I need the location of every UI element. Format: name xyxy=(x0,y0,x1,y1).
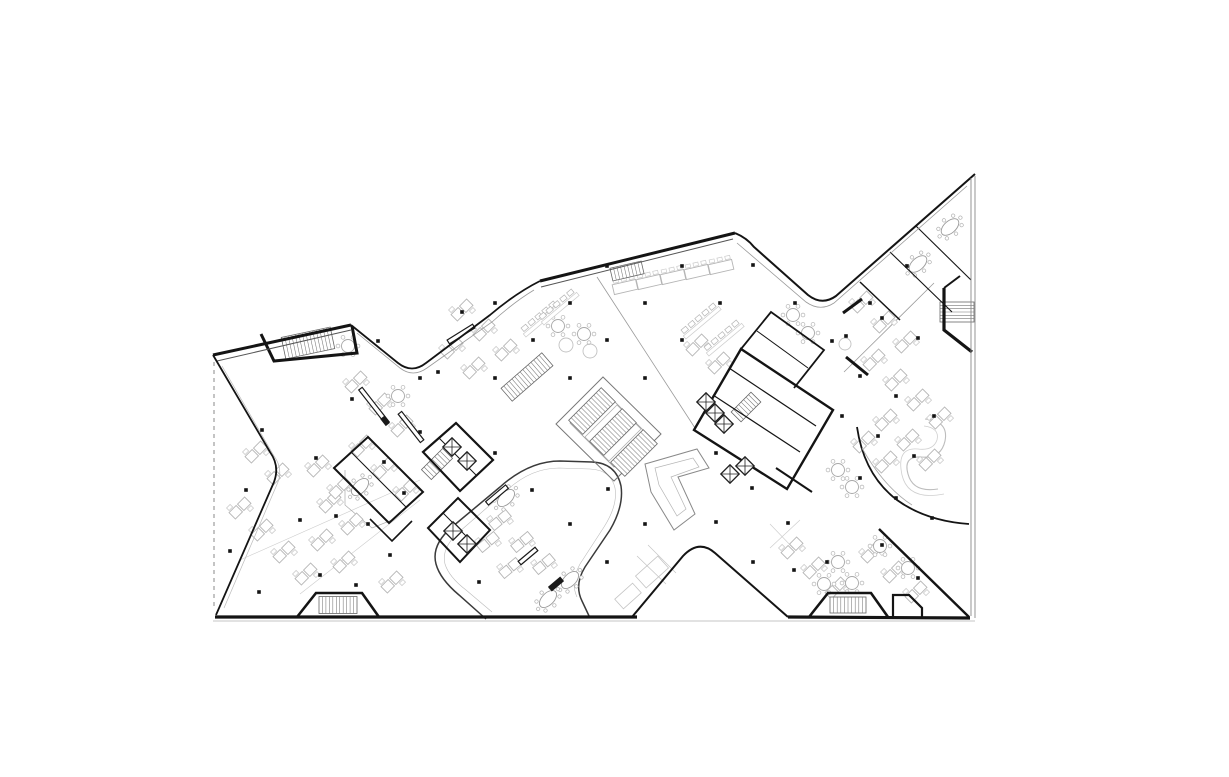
long-table xyxy=(707,255,734,275)
room-partition xyxy=(757,331,808,368)
table-top xyxy=(787,309,800,322)
facade-south-right xyxy=(788,617,970,618)
oval-meeting-table xyxy=(529,580,566,617)
desk-group xyxy=(904,386,933,415)
chair-icon xyxy=(572,332,576,336)
column-dot xyxy=(718,301,722,305)
notch-top-left-glass-line xyxy=(357,290,534,373)
column-dot xyxy=(257,590,261,594)
chair-icon xyxy=(927,260,932,265)
elevator-cell xyxy=(444,522,462,540)
column-dot xyxy=(418,430,422,434)
column-dot xyxy=(568,376,572,380)
stair-flight xyxy=(281,327,334,359)
chair-icon xyxy=(367,475,372,480)
chair-icon xyxy=(841,459,845,463)
chair-icon xyxy=(701,260,707,264)
chair-icon xyxy=(401,403,405,407)
chair-icon xyxy=(945,236,950,241)
chair-icon xyxy=(896,566,900,570)
table-top xyxy=(818,578,831,591)
chair-icon xyxy=(841,569,845,573)
chair-icon xyxy=(911,575,915,579)
column-dot xyxy=(750,486,754,490)
chair-icon xyxy=(515,493,520,498)
desk-group xyxy=(226,494,255,523)
chair-icon xyxy=(539,590,544,595)
chair-icon xyxy=(364,491,369,496)
column-dot xyxy=(894,496,898,500)
desk-group xyxy=(916,446,945,475)
chair-icon xyxy=(536,606,541,611)
chair-icon xyxy=(841,477,845,481)
chair-icon xyxy=(561,571,566,576)
table-top xyxy=(832,556,845,569)
column-dot xyxy=(751,263,755,267)
chair-icon xyxy=(951,213,956,218)
chair-icon xyxy=(351,478,356,483)
chair-icon xyxy=(685,264,691,268)
chair-icon xyxy=(826,468,830,472)
stair-flight xyxy=(731,392,761,422)
column-dot xyxy=(334,514,338,518)
column-dot xyxy=(260,428,264,432)
table-top xyxy=(536,587,559,610)
column-dot xyxy=(531,338,535,342)
chair-icon xyxy=(817,573,821,577)
desk-group xyxy=(892,328,921,357)
chair-icon xyxy=(669,267,675,271)
chair-icon xyxy=(846,468,850,472)
column-dot xyxy=(388,553,392,557)
desk-group xyxy=(926,404,955,433)
table-top xyxy=(342,340,355,353)
planter-rect xyxy=(615,583,642,609)
chair-icon xyxy=(910,255,915,260)
column-dot xyxy=(792,568,796,572)
column-dot xyxy=(714,451,718,455)
desk-group xyxy=(270,538,299,567)
chair-icon xyxy=(693,262,699,266)
chair-icon xyxy=(831,569,835,573)
column-dot xyxy=(568,301,572,305)
column-dot xyxy=(568,522,572,526)
chair-icon xyxy=(840,485,844,489)
chair-icon xyxy=(919,250,924,255)
column-dot xyxy=(354,583,358,587)
column-dot xyxy=(493,301,497,305)
chair-icon xyxy=(958,215,963,220)
chair-icon xyxy=(841,551,845,555)
column-dot xyxy=(376,339,380,343)
chair-icon xyxy=(406,394,410,398)
desk-group xyxy=(882,366,911,395)
column-dot xyxy=(930,516,934,520)
chair-icon xyxy=(937,234,942,239)
desk-group xyxy=(348,432,377,461)
planter-circle xyxy=(583,344,597,358)
chair-icon xyxy=(873,553,877,557)
table-top xyxy=(392,390,405,403)
stair-flight xyxy=(319,597,357,614)
column-dot xyxy=(350,397,354,401)
column-dot xyxy=(916,336,920,340)
column-dot xyxy=(840,414,844,418)
chair-icon xyxy=(901,575,905,579)
column-dot xyxy=(868,301,872,305)
chair-icon xyxy=(513,486,518,491)
chair-icon xyxy=(801,313,805,317)
chair-icon xyxy=(888,544,892,548)
zone-divider-line xyxy=(844,283,934,372)
desk-group xyxy=(292,560,321,589)
chair-icon xyxy=(725,255,731,259)
desk-group xyxy=(308,526,337,555)
chair-icon xyxy=(709,259,715,263)
desk-group xyxy=(370,454,399,483)
column-dot xyxy=(606,487,610,491)
chair-icon xyxy=(577,323,581,327)
chair-icon xyxy=(546,324,550,328)
column-dot xyxy=(530,488,534,492)
chair-icon xyxy=(360,473,365,478)
chair-icon xyxy=(832,582,836,586)
chair-icon xyxy=(570,566,575,571)
chair-icon xyxy=(391,385,395,389)
chair-icon xyxy=(868,544,872,548)
column-dot xyxy=(643,522,647,526)
column-dot xyxy=(880,316,884,320)
chair-icon xyxy=(801,340,805,344)
chair-icon xyxy=(959,223,964,228)
chair-icon xyxy=(954,231,959,236)
chair-icon xyxy=(873,535,877,539)
chair-icon xyxy=(551,333,555,337)
column-dot xyxy=(793,301,797,305)
column-dot xyxy=(876,434,880,438)
desk-group xyxy=(495,554,524,583)
stair-flight xyxy=(501,353,553,401)
chair-icon xyxy=(845,476,849,480)
round-table xyxy=(572,323,596,344)
chair-icon xyxy=(827,573,831,577)
column-dot xyxy=(830,339,834,343)
elevator-x-icon xyxy=(721,465,739,483)
column-dot xyxy=(314,456,318,460)
table-top xyxy=(906,253,930,276)
elevator-x-icon xyxy=(444,522,462,540)
chair-icon xyxy=(369,482,374,487)
chair-icon xyxy=(645,272,651,276)
chair-icon xyxy=(845,572,849,576)
chair-icon xyxy=(816,331,820,335)
column-dot xyxy=(916,576,920,580)
desk-group xyxy=(778,534,807,563)
table-top xyxy=(578,328,591,341)
planter-outline xyxy=(615,583,642,609)
chair-icon xyxy=(860,485,864,489)
column-dot xyxy=(436,370,440,374)
chair-icon xyxy=(831,459,835,463)
column-dot xyxy=(680,264,684,268)
column-dot xyxy=(714,520,718,524)
column-dot xyxy=(643,376,647,380)
chair-icon xyxy=(883,553,887,557)
chair-icon xyxy=(348,494,353,499)
chair-icon xyxy=(587,323,591,327)
chair-icon xyxy=(543,608,548,613)
chair-icon xyxy=(831,551,835,555)
elevator-cell xyxy=(721,465,739,483)
long-table xyxy=(683,260,710,280)
chair-icon xyxy=(566,324,570,328)
chair-icon xyxy=(557,594,562,599)
column-dot xyxy=(605,338,609,342)
oval-meeting-table xyxy=(931,209,969,246)
floor-plan-canvas xyxy=(0,0,1229,777)
chair-icon xyxy=(845,494,849,498)
chair-icon xyxy=(855,572,859,576)
floor-plan-image xyxy=(0,0,1229,777)
stair-flight xyxy=(421,448,452,479)
chair-icon xyxy=(860,581,864,585)
column-dot xyxy=(298,518,302,522)
chair-icon xyxy=(840,581,844,585)
chair-icon xyxy=(534,599,539,604)
desk-group xyxy=(378,568,407,597)
chair-icon xyxy=(717,257,723,261)
chair-icon xyxy=(901,557,905,561)
column-dot xyxy=(844,334,848,338)
chair-icon xyxy=(510,502,515,507)
desk-group xyxy=(872,406,901,435)
column-dot xyxy=(786,521,790,525)
column-dot xyxy=(366,522,370,526)
column-dot xyxy=(751,560,755,564)
chair-icon xyxy=(336,344,340,348)
column-dot xyxy=(244,488,248,492)
chair-icon xyxy=(786,304,790,308)
chair-icon xyxy=(922,268,927,273)
column-dot xyxy=(228,549,232,553)
column-dot xyxy=(402,491,406,495)
planter-circle xyxy=(839,338,851,350)
chair-icon xyxy=(565,589,570,594)
chair-icon xyxy=(831,477,835,481)
chair-icon xyxy=(561,315,565,319)
column-dot xyxy=(418,376,422,380)
desk-group xyxy=(460,354,489,383)
desk-group xyxy=(448,296,477,325)
column-dot xyxy=(905,264,909,268)
chair-icon xyxy=(936,226,941,231)
long-table xyxy=(659,265,686,285)
round-table xyxy=(840,572,864,593)
chair-icon xyxy=(846,560,850,564)
notch-west-edge xyxy=(213,355,276,615)
planter-circle xyxy=(559,338,573,352)
stair-flight xyxy=(830,597,866,613)
elevator-cell xyxy=(458,452,476,470)
desk-group xyxy=(338,510,367,539)
round-table xyxy=(896,557,920,578)
planter-guide-line xyxy=(637,545,676,584)
table-top xyxy=(552,320,565,333)
column-dot xyxy=(825,560,829,564)
round-table xyxy=(826,551,850,572)
column-dot xyxy=(680,338,684,342)
desk-group xyxy=(392,476,421,505)
column-dot xyxy=(858,374,862,378)
column-dot xyxy=(894,394,898,398)
table-top xyxy=(938,216,962,239)
column-dot xyxy=(932,414,936,418)
wall-segment xyxy=(776,468,812,492)
chair-icon xyxy=(817,591,821,595)
column-dot xyxy=(912,454,916,458)
chair-icon xyxy=(386,394,390,398)
chair-icon xyxy=(801,322,805,326)
stair-outline xyxy=(501,353,553,401)
oval-meeting-table xyxy=(899,246,937,283)
bench-row xyxy=(702,319,744,356)
desk-group xyxy=(304,452,333,481)
stair-room-east-wall xyxy=(944,276,960,288)
elevator-cell xyxy=(458,535,476,553)
chair-icon xyxy=(494,505,499,510)
chair-icon xyxy=(561,333,565,337)
chair-icon xyxy=(401,385,405,389)
table-top xyxy=(874,540,887,553)
chair-icon xyxy=(926,252,931,257)
notch-top-right-glass-line xyxy=(737,186,967,307)
chair-icon xyxy=(355,496,360,501)
chair-icon xyxy=(905,271,910,276)
column-dot xyxy=(858,476,862,480)
bench-row xyxy=(679,302,721,339)
column-dot xyxy=(880,543,884,547)
column-dot xyxy=(605,264,609,268)
column-dot xyxy=(318,573,322,577)
elevator-x-icon xyxy=(458,535,476,553)
chair-icon xyxy=(811,322,815,326)
chair-icon xyxy=(796,304,800,308)
table-top xyxy=(832,464,845,477)
desk-group xyxy=(492,336,521,365)
stair-outline xyxy=(319,597,357,614)
table-top xyxy=(846,577,859,590)
desk-group xyxy=(848,288,877,317)
chair-icon xyxy=(592,332,596,336)
chair-icon xyxy=(855,494,859,498)
column-dot xyxy=(493,376,497,380)
column-dot xyxy=(382,460,386,464)
chair-icon xyxy=(661,269,667,273)
chair-icon xyxy=(812,582,816,586)
column-dot xyxy=(460,310,464,314)
chair-icon xyxy=(942,218,947,223)
desk-group xyxy=(872,448,901,477)
elevator-x-icon xyxy=(458,452,476,470)
chair-icon xyxy=(341,335,345,339)
chair-icon xyxy=(781,313,785,317)
chair-icon xyxy=(577,341,581,345)
chair-icon xyxy=(653,270,659,274)
chair-icon xyxy=(796,322,800,326)
table-top xyxy=(846,481,859,494)
column-dot xyxy=(605,560,609,564)
chair-icon xyxy=(391,403,395,407)
chair-icon xyxy=(552,603,557,608)
column-dot xyxy=(477,580,481,584)
notch-bottom-edge xyxy=(632,547,788,617)
column-dot xyxy=(493,451,497,455)
column-dot xyxy=(643,301,647,305)
